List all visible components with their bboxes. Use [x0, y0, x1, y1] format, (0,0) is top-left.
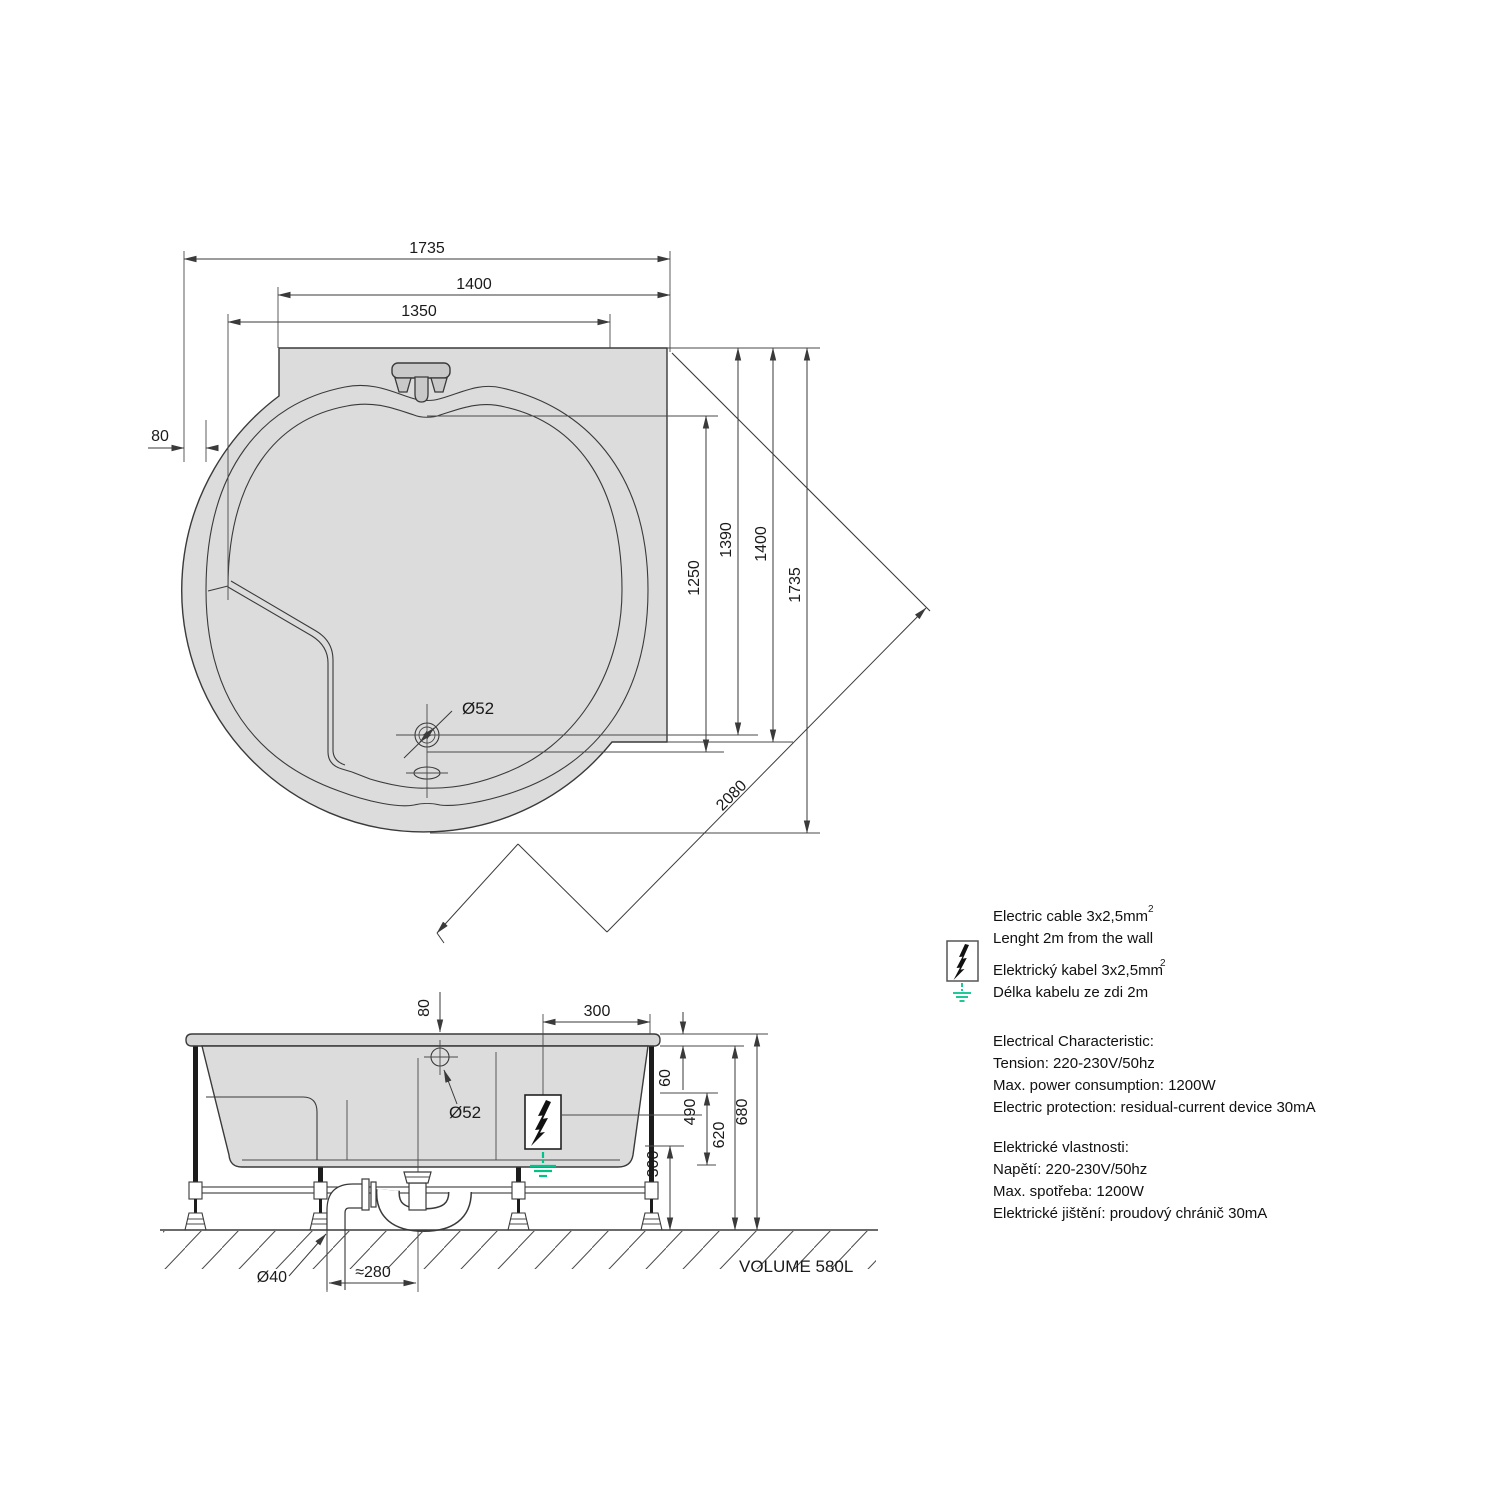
- legend-power-cz: Max. spotřeba: 1200W: [993, 1183, 1145, 1200]
- technical-drawing-page: Ø52 1735 1400 1350: [0, 0, 1500, 1500]
- threaded-rod: [650, 1199, 653, 1213]
- threaded-rod: [517, 1199, 520, 1213]
- dim-280-label: ≈280: [355, 1264, 391, 1281]
- tailpiece: [409, 1183, 426, 1210]
- bracket: [512, 1182, 525, 1199]
- dim-label-1390: 1390: [718, 522, 735, 558]
- dim-label-1735: 1735: [787, 567, 804, 603]
- foot: [641, 1213, 662, 1230]
- drain-fitting-flange: [404, 1172, 431, 1183]
- legend-power-en: Max. power consumption: 1200W: [993, 1077, 1216, 1094]
- tub-silhouette: [182, 348, 667, 832]
- threaded-rod: [194, 1199, 197, 1213]
- dim-label-1400: 1400: [753, 526, 770, 562]
- legend-tension-en: Tension: 220-230V/50hz: [993, 1055, 1155, 1072]
- threaded-rod: [319, 1199, 322, 1213]
- legend-protection-cz: Elektrické jištění: proudový chránič 30m…: [993, 1205, 1267, 1222]
- overflow-label: Ø52: [449, 1103, 481, 1122]
- dim-label: 1400: [456, 276, 492, 293]
- legend-cable-cz: Elektrický kabel 3x2,5mm: [993, 962, 1163, 979]
- faucet-bar: [392, 363, 450, 378]
- bracket: [314, 1182, 327, 1199]
- leg-1: [193, 1046, 198, 1186]
- legend-cable-en-sup: 2: [1148, 904, 1154, 915]
- dim-label: 1350: [401, 303, 437, 320]
- dim-80-label: 80: [416, 999, 433, 1017]
- dim-620-label: 620: [711, 1122, 728, 1149]
- bathtub-installation-diagram: Ø52 1735 1400 1350: [0, 0, 1500, 1500]
- legend-tension-cz: Napětí: 220-230V/50hz: [993, 1161, 1147, 1178]
- legend-protection-en: Electric protection: residual-current de…: [993, 1099, 1316, 1116]
- bracket: [189, 1182, 202, 1199]
- dim-490-label: 490: [682, 1099, 699, 1126]
- dim-label: 1735: [409, 240, 445, 257]
- dim-60-label: 60: [657, 1069, 674, 1087]
- pipe-label: Ø40: [257, 1269, 287, 1286]
- volume-label: VOLUME 580L: [739, 1257, 853, 1276]
- legend-length-cz: Délka kabelu ze zdi 2m: [993, 984, 1148, 1001]
- drain-label: Ø52: [462, 699, 494, 718]
- legend-cable-cz-sup: 2: [1160, 958, 1166, 969]
- legend-cable-en: Electric cable 3x2,5mm: [993, 908, 1148, 925]
- legend-char-en: Electrical Characteristic:: [993, 1033, 1154, 1050]
- foot: [508, 1213, 529, 1230]
- foot: [185, 1213, 206, 1230]
- bracket: [645, 1182, 658, 1199]
- legend-length-en: Lenght 2m from the wall: [993, 930, 1153, 947]
- legend-char-cz: Elektrické vlastnosti:: [993, 1139, 1129, 1156]
- tub-body: [202, 1046, 648, 1167]
- union-plate-2: [371, 1182, 376, 1207]
- dim-300-label: 300: [645, 1151, 662, 1178]
- dim-label: 300: [584, 1003, 611, 1020]
- dim-label-1250: 1250: [686, 560, 703, 596]
- dim-label: 80: [151, 428, 169, 445]
- rim-slab: [186, 1034, 660, 1046]
- faucet-spout-stem: [415, 377, 428, 402]
- dim-680-label: 680: [734, 1099, 751, 1126]
- union-plate-1: [362, 1179, 369, 1210]
